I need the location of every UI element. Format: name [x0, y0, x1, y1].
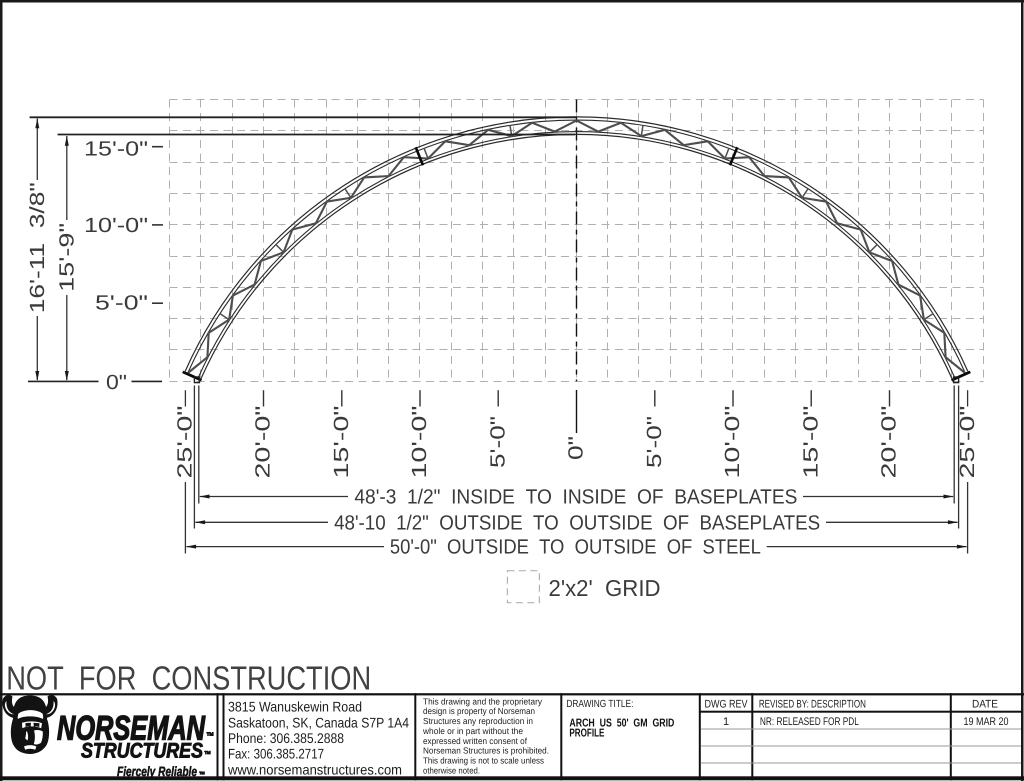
- svg-text:Fax: 306.385.2717: Fax: 306.385.2717: [228, 746, 324, 762]
- svg-text:whole or in part without the: whole or in part without the: [422, 726, 523, 736]
- svg-text:This drawing is not to scale u: This drawing is not to scale unless: [423, 756, 545, 766]
- svg-text:Phone: 306.385.2888: Phone: 306.385.2888: [228, 730, 344, 746]
- svg-text:10'-0": 10'-0": [84, 214, 148, 237]
- svg-text:5'-0": 5'-0": [95, 291, 148, 314]
- svg-text:2'x2' GRID: 2'x2' GRID: [549, 575, 661, 601]
- svg-text:5'-0": 5'-0": [486, 416, 509, 468]
- svg-text:0": 0": [106, 371, 127, 394]
- svg-text:STRUCTURES: STRUCTURES: [81, 740, 203, 763]
- svg-text:Norseman Structures is prohibi: Norseman Structures is prohibited.: [423, 746, 549, 756]
- svg-text:DRAWING TITLE:: DRAWING TITLE:: [566, 699, 633, 710]
- svg-text:Fiercely Reliable: Fiercely Reliable: [117, 764, 197, 779]
- svg-text:50'-0" OUTSIDE TO OUTSIDE: 50'-0" OUTSIDE TO OUTSIDE OF STEEL: [390, 535, 761, 558]
- svg-text:15'-0": 15'-0": [330, 406, 353, 479]
- svg-text:0": 0": [565, 436, 588, 460]
- svg-text:15'-9": 15'-9": [55, 223, 78, 292]
- svg-text:3815 Wanuskewin Road: 3815 Wanuskewin Road: [228, 699, 362, 715]
- svg-text:™: ™: [199, 771, 205, 778]
- svg-text:™: ™: [206, 731, 214, 740]
- svg-text:DATE: DATE: [972, 699, 998, 711]
- svg-text:This drawing and the proprieta: This drawing and the proprietary: [423, 696, 543, 706]
- svg-text:DWG REV: DWG REV: [705, 699, 749, 711]
- svg-text:19 MAR 20: 19 MAR 20: [964, 716, 1009, 728]
- svg-text:expressed written consent of: expressed written consent of: [423, 736, 528, 746]
- svg-text:5'-0": 5'-0": [643, 416, 666, 468]
- svg-text:1: 1: [723, 716, 729, 728]
- svg-text:Structures any reproduction in: Structures any reproduction in: [423, 716, 533, 726]
- svg-text:www.norsemanstructures.com: www.norsemanstructures.com: [227, 762, 402, 778]
- svg-text:design is property of Norseman: design is property of Norseman: [423, 706, 535, 716]
- svg-text:10'-0": 10'-0": [721, 406, 744, 479]
- svg-text:NOT FOR CONSTRUCTION: NOT FOR CONSTRUCTION: [6, 661, 371, 698]
- svg-text:otherwise noted.: otherwise noted.: [423, 765, 480, 775]
- svg-text:10'-0": 10'-0": [408, 406, 431, 479]
- svg-text:NR: RELEASED FOR PDL: NR: RELEASED FOR PDL: [760, 716, 859, 728]
- svg-text:15'-0": 15'-0": [84, 137, 148, 160]
- svg-text:20'-0": 20'-0": [878, 406, 901, 479]
- svg-text:25'-0": 25'-0": [173, 406, 196, 479]
- svg-text:48'-3 1/2" INSIDE TO INSID: 48'-3 1/2" INSIDE TO INSIDE OF BASEPLATE…: [354, 485, 797, 508]
- svg-text:16'-11 3/8": 16'-11 3/8": [26, 182, 49, 313]
- svg-text:PROFILE: PROFILE: [569, 728, 604, 740]
- svg-text:Saskatoon, SK, Canada S7P 1A4: Saskatoon, SK, Canada S7P 1A4: [228, 715, 409, 731]
- svg-text:REVISED BY: DESCRIPTION: REVISED BY: DESCRIPTION: [759, 699, 866, 711]
- svg-text:25'-0": 25'-0": [956, 406, 979, 479]
- svg-text:20'-0": 20'-0": [252, 406, 275, 479]
- svg-text:15'-0": 15'-0": [800, 406, 823, 479]
- svg-text:48'-10 1/2" OUTSIDE TO OUT: 48'-10 1/2" OUTSIDE TO OUTSIDE OF BASEPL…: [334, 512, 820, 535]
- svg-text:™: ™: [204, 751, 211, 758]
